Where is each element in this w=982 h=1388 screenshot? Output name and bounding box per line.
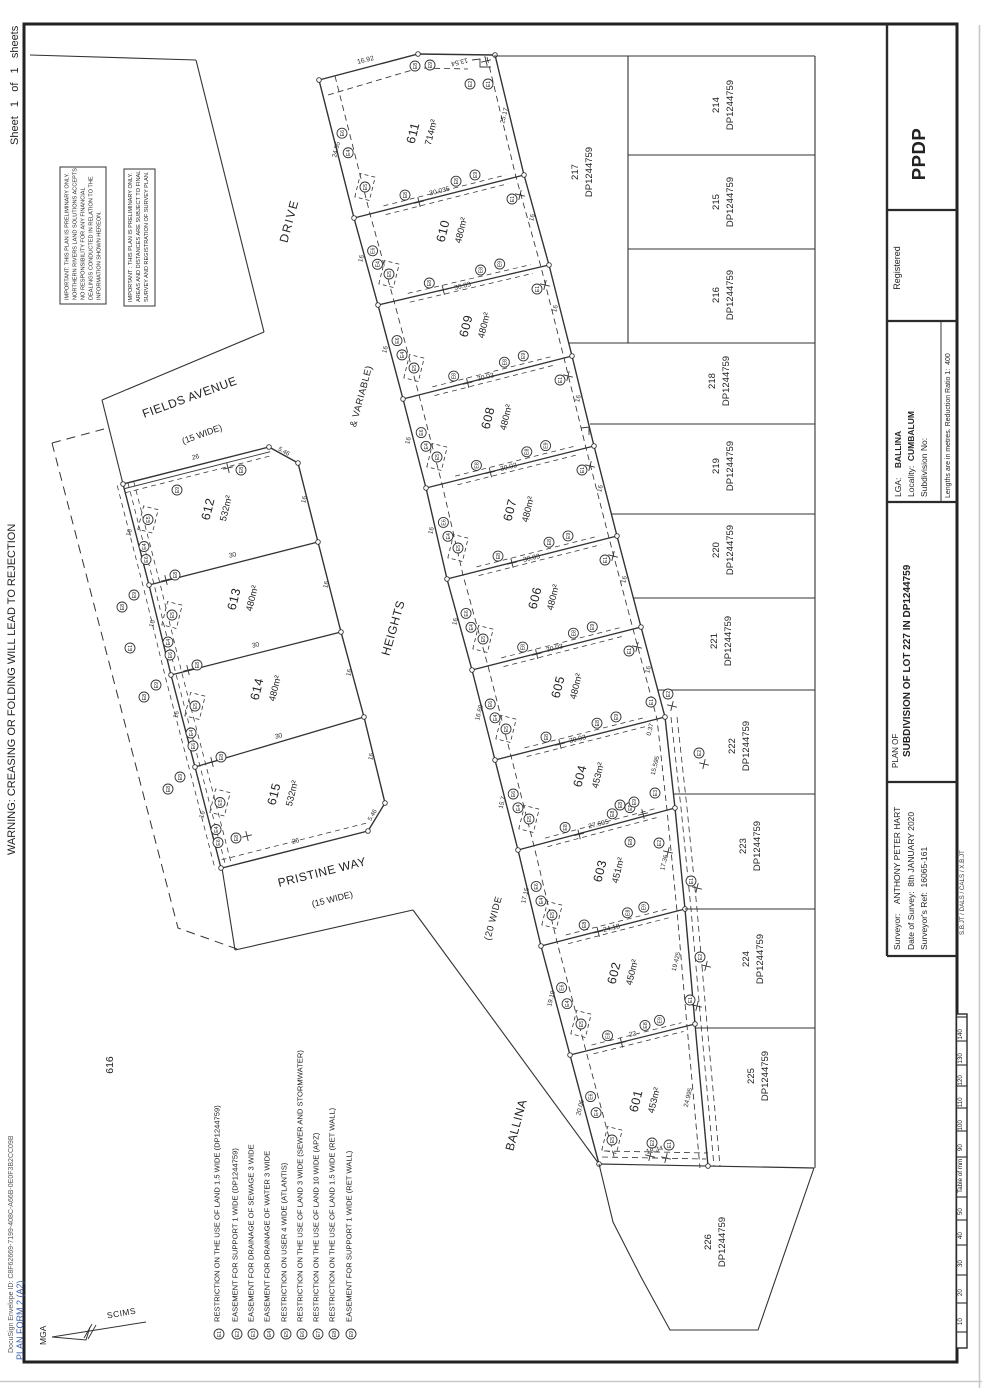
svg-text:E9: E9 — [428, 62, 434, 68]
svg-text:DP1244759: DP1244759 — [752, 821, 763, 871]
svg-text:219: 219 — [711, 458, 722, 474]
svg-text:E6: E6 — [168, 652, 174, 658]
svg-text:E9: E9 — [543, 442, 549, 448]
svg-text:DP1244759: DP1244759 — [725, 270, 736, 320]
svg-text:E9: E9 — [154, 682, 160, 688]
svg-text:E5: E5 — [610, 1137, 616, 1143]
svg-text:E3: E3 — [653, 790, 659, 796]
svg-text:E6: E6 — [559, 984, 565, 990]
svg-text:110: 110 — [957, 1097, 964, 1108]
svg-text:E4: E4 — [424, 443, 430, 449]
svg-text:Date of Survey: 8th JANUARY 2: Date of Survey: 8th JANUARY 2020 — [906, 812, 916, 950]
svg-text:E6: E6 — [216, 839, 222, 845]
svg-text:E8: E8 — [219, 754, 225, 760]
svg-text:E8: E8 — [521, 644, 527, 650]
svg-text:E8: E8 — [625, 910, 631, 916]
svg-text:40: 40 — [957, 1232, 964, 1240]
svg-text:NORTHERN RIVERS LAND SOLUTIONS: NORTHERN RIVERS LAND SOLUTIONS ACCEPTS — [73, 168, 79, 300]
svg-text:214: 214 — [711, 97, 722, 113]
svg-text:E2: E2 — [666, 691, 672, 697]
svg-text:E9: E9 — [132, 592, 138, 598]
svg-text:10: 10 — [957, 1318, 964, 1326]
svg-text:DP1244759: DP1244759 — [725, 177, 736, 227]
svg-text:E1: E1 — [580, 467, 586, 473]
svg-text:140: 140 — [957, 1029, 964, 1040]
svg-text:E8: E8 — [478, 267, 484, 273]
svg-text:Sheet 1 of 1 sheets: Sheet 1 of 1 sheets — [9, 25, 21, 145]
svg-text:E8: E8 — [452, 373, 458, 379]
svg-text:E8: E8 — [173, 572, 179, 578]
svg-text:E5: E5 — [435, 454, 441, 460]
svg-text:EASEMENT FOR DRAINAGE OF WATER: EASEMENT FOR DRAINAGE OF WATER 3 WIDE — [263, 1151, 272, 1322]
svg-text:E5: E5 — [481, 636, 487, 642]
svg-text:E1: E1 — [688, 997, 694, 1003]
svg-text:E6: E6 — [340, 130, 346, 136]
svg-text:E9: E9 — [642, 904, 648, 910]
svg-text:E4: E4 — [346, 149, 352, 155]
svg-text:E4: E4 — [375, 261, 381, 267]
svg-text:DEALINGS CONDUCTED IN RELATION: DEALINGS CONDUCTED IN RELATION TO THE — [89, 176, 95, 300]
svg-text:215: 215 — [711, 194, 722, 210]
svg-text:RESTRICTION ON THE USE OF LAND: RESTRICTION ON THE USE OF LAND 3 WIDE (S… — [296, 1050, 305, 1322]
svg-text:E9: E9 — [590, 624, 596, 630]
svg-text:AREAS AND DISTANCES ARE SUBJEC: AREAS AND DISTANCES ARE SUBJECT TO FINAL — [136, 171, 142, 302]
svg-text:DP1244759: DP1244759 — [741, 721, 752, 771]
svg-text:100: 100 — [957, 1120, 964, 1131]
svg-text:E6: E6 — [300, 1331, 306, 1337]
svg-text:DP1244759: DP1244759 — [755, 934, 766, 984]
svg-text:90: 90 — [957, 1144, 964, 1152]
svg-text:30: 30 — [957, 1260, 964, 1268]
svg-text:PLAN OF: PLAN OF — [891, 734, 900, 768]
svg-text:SUBDIVISION OF LOT 227 IN DP12: SUBDIVISION OF LOT 227 IN DP1244759 — [902, 564, 913, 757]
svg-text:E9: E9 — [657, 1017, 663, 1023]
svg-text:E5: E5 — [363, 184, 369, 190]
svg-text:E8: E8 — [605, 1032, 611, 1038]
svg-text:E5: E5 — [456, 545, 462, 551]
svg-text:222: 222 — [727, 738, 738, 754]
svg-text:E4: E4 — [189, 730, 195, 736]
svg-text:E1: E1 — [603, 557, 609, 563]
svg-text:E6: E6 — [370, 248, 376, 254]
svg-text:E5: E5 — [387, 271, 393, 277]
svg-text:50: 50 — [957, 1208, 964, 1216]
svg-text:E1: E1 — [535, 286, 541, 292]
svg-text:E9: E9 — [498, 261, 504, 267]
svg-text:PLAN FORM 2 (A2): PLAN FORM 2 (A2) — [15, 1280, 25, 1360]
svg-text:221: 221 — [709, 633, 720, 649]
svg-text:DP1244759: DP1244759 — [725, 525, 736, 575]
svg-text:E4: E4 — [516, 805, 522, 811]
svg-text:E2: E2 — [697, 750, 703, 756]
svg-text:E2: E2 — [468, 81, 474, 87]
svg-text:DP1244759: DP1244759 — [760, 1051, 771, 1101]
svg-text:E8: E8 — [563, 824, 569, 830]
svg-text:E8: E8 — [142, 694, 148, 700]
svg-text:E8: E8 — [166, 786, 172, 792]
svg-text:S.B.JT / DALS / CALS / X.B.JT: S.B.JT / DALS / CALS / X.B.JT — [959, 850, 966, 935]
svg-text:E8: E8 — [427, 280, 433, 286]
svg-text:Surveyor's Ref: 16065-161: Surveyor's Ref: 16065-161 — [919, 847, 929, 950]
svg-text:WARNING: CREASING OR FOLDING W: WARNING: CREASING OR FOLDING WILL LEAD T… — [6, 524, 18, 855]
svg-text:E4: E4 — [267, 1331, 273, 1337]
svg-text:E8: E8 — [643, 1022, 649, 1028]
svg-text:E5: E5 — [550, 912, 556, 918]
svg-text:EASEMENT FOR DRAINAGE OF SEWAG: EASEMENT FOR DRAINAGE OF SEWAGE 3 WIDE — [247, 1144, 256, 1322]
svg-text:IMPORTANT: THIS PLAN IS PRELIM: IMPORTANT: THIS PLAN IS PRELIMINARY ONLY… — [65, 173, 71, 300]
svg-text:E8: E8 — [413, 63, 419, 69]
svg-text:E2: E2 — [235, 1331, 241, 1337]
svg-text:E6: E6 — [191, 743, 197, 749]
svg-text:E5: E5 — [412, 365, 418, 371]
svg-text:E8: E8 — [547, 539, 553, 545]
svg-text:E9: E9 — [349, 1331, 355, 1337]
svg-text:E8: E8 — [571, 630, 577, 636]
svg-text:E5: E5 — [284, 1331, 290, 1337]
svg-text:E8: E8 — [628, 839, 634, 845]
svg-text:E8: E8 — [234, 835, 240, 841]
svg-text:E5: E5 — [527, 816, 533, 822]
svg-text:E4: E4 — [594, 1109, 600, 1115]
svg-text:EASEMENT FOR SUPPORT 1 WIDE (D: EASEMENT FOR SUPPORT 1 WIDE (DP1244759) — [231, 1148, 240, 1322]
svg-text:RESTRICTION ON THE USE OF LAND: RESTRICTION ON THE USE OF LAND 1.5 WIDE … — [213, 1105, 222, 1322]
svg-text:E5: E5 — [218, 799, 224, 805]
svg-text:E8: E8 — [403, 192, 409, 198]
svg-text:E6: E6 — [395, 337, 401, 343]
svg-text:DocuSign Envelope ID: C8F62669: DocuSign Envelope ID: C8F62669-7199-408C… — [8, 1135, 15, 1353]
svg-text:E9: E9 — [178, 774, 184, 780]
svg-text:E1: E1 — [510, 196, 516, 202]
svg-text:E1: E1 — [667, 1142, 673, 1148]
svg-text:RESTRICTION ON THE USE OF LAND: RESTRICTION ON THE USE OF LAND 10 WIDE (… — [312, 1132, 321, 1322]
svg-text:E6: E6 — [419, 429, 425, 435]
svg-text:E6: E6 — [441, 519, 447, 525]
svg-text:E6: E6 — [534, 883, 540, 889]
svg-text:216: 216 — [711, 287, 722, 303]
svg-text:E8: E8 — [120, 604, 126, 610]
svg-text:E1: E1 — [217, 1331, 223, 1337]
svg-text:E2: E2 — [657, 840, 663, 846]
svg-text:E8: E8 — [525, 449, 531, 455]
svg-text:120: 120 — [957, 1075, 964, 1086]
svg-text:LGA: BALLINA: LGA: BALLINA — [893, 431, 903, 497]
svg-text:E4: E4 — [214, 826, 220, 832]
svg-text:E8: E8 — [618, 802, 624, 808]
svg-text:20: 20 — [957, 1289, 964, 1297]
svg-text:224: 224 — [741, 951, 752, 967]
svg-text:DP1244759: DP1244759 — [721, 356, 732, 406]
svg-text:218: 218 — [707, 373, 718, 389]
svg-text:E8: E8 — [454, 178, 460, 184]
svg-text:E4: E4 — [142, 543, 148, 549]
svg-text:223: 223 — [738, 838, 749, 854]
svg-text:DP1244759: DP1244759 — [725, 80, 736, 130]
svg-text:E6: E6 — [588, 1093, 594, 1099]
svg-text:DP1244759: DP1244759 — [584, 147, 595, 197]
svg-text:E1: E1 — [558, 377, 564, 383]
svg-text:E5: E5 — [504, 726, 510, 732]
svg-text:E4: E4 — [469, 624, 475, 630]
svg-text:E8: E8 — [332, 1331, 338, 1337]
svg-text:E1: E1 — [486, 81, 492, 87]
svg-text:E8: E8 — [595, 720, 601, 726]
svg-text:E1: E1 — [649, 699, 655, 705]
svg-text:EASEMENT FOR SUPPORT 1 WIDE (R: EASEMENT FOR SUPPORT 1 WIDE (RET WALL) — [345, 1150, 354, 1322]
svg-text:220: 220 — [711, 542, 722, 558]
svg-text:E4: E4 — [446, 533, 452, 539]
svg-text:Lengths are in metres. Reducti: Lengths are in metres. Reduction Ratio 1… — [945, 353, 952, 498]
svg-text:E4: E4 — [539, 898, 545, 904]
svg-text:E8: E8 — [610, 811, 616, 817]
svg-text:E8: E8 — [239, 467, 245, 473]
svg-text:E8: E8 — [195, 662, 201, 668]
svg-text:E9: E9 — [566, 533, 572, 539]
svg-text:130: 130 — [957, 1053, 964, 1064]
svg-text:E5: E5 — [193, 703, 199, 709]
svg-text:Subdivision No:: Subdivision No: — [919, 438, 929, 497]
svg-text:DP1244759: DP1244759 — [725, 441, 736, 491]
svg-text:SURVEY AND REGISTRATION OF SUR: SURVEY AND REGISTRATION OF SURVEY PLAN. — [144, 171, 150, 302]
svg-text:E9: E9 — [521, 353, 527, 359]
svg-text:E8: E8 — [502, 359, 508, 365]
svg-text:E8: E8 — [496, 553, 502, 559]
svg-text:MGA: MGA — [38, 1325, 48, 1345]
svg-text:E8: E8 — [474, 462, 480, 468]
svg-text:DP1244759: DP1244759 — [717, 1217, 728, 1267]
svg-text:E5: E5 — [579, 1021, 585, 1027]
svg-text:E6: E6 — [488, 701, 494, 707]
svg-text:E8: E8 — [544, 734, 550, 740]
svg-text:E6: E6 — [464, 610, 470, 616]
svg-text:E3: E3 — [251, 1331, 257, 1337]
svg-text:616: 616 — [104, 1056, 116, 1074]
svg-text:E9: E9 — [632, 799, 638, 805]
svg-text:Surveyor: ANTHONY PETER HAR: Surveyor: ANTHONY PETER HART — [892, 807, 902, 950]
svg-text:E4: E4 — [400, 352, 406, 358]
svg-text:E6: E6 — [511, 791, 517, 797]
svg-text:E6: E6 — [144, 556, 150, 562]
svg-text:E9: E9 — [473, 172, 479, 178]
svg-text:Locality: CUMBALUM: Locality: CUMBALUM — [906, 411, 916, 497]
svg-text:217: 217 — [570, 164, 581, 180]
svg-text:226: 226 — [703, 1234, 714, 1250]
svg-text:Registered: Registered — [892, 246, 902, 290]
svg-text:E2: E2 — [650, 1140, 656, 1146]
svg-text:Table of mm: Table of mm — [957, 1159, 964, 1193]
svg-text:E8: E8 — [582, 922, 588, 928]
svg-text:E5: E5 — [170, 612, 176, 618]
svg-text:E4: E4 — [493, 715, 499, 721]
svg-text:E5: E5 — [146, 516, 152, 522]
svg-text:NO RESPONSIBILITY FOR ANY FINA: NO RESPONSIBILITY FOR ANY FINANCIAL — [81, 187, 87, 300]
svg-text:IMPORTANT : THIS PLAN IS PRELI: IMPORTANT : THIS PLAN IS PRELIMINARY ONL… — [128, 172, 134, 302]
svg-text:E1: E1 — [128, 645, 134, 651]
svg-text:E7: E7 — [316, 1331, 322, 1337]
svg-text:E4: E4 — [166, 639, 172, 645]
svg-text:225: 225 — [746, 1068, 757, 1084]
svg-text:E1: E1 — [627, 648, 633, 654]
svg-text:PPDP: PPDP — [908, 128, 929, 180]
svg-text:RESTRICTION ON THE USE OF LAND: RESTRICTION ON THE USE OF LAND 1.5 WIDE … — [328, 1107, 337, 1322]
svg-text:E1: E1 — [689, 878, 695, 884]
svg-text:E4: E4 — [565, 1000, 571, 1006]
svg-text:DP1244759: DP1244759 — [723, 616, 734, 666]
svg-text:INFORMATION SHOWN HEREON.: INFORMATION SHOWN HEREON. — [97, 211, 103, 300]
svg-text:E2: E2 — [698, 954, 704, 960]
svg-text:E9: E9 — [614, 714, 620, 720]
svg-text:RESTRICTION ON USER 4 WIDE (AT: RESTRICTION ON USER 4 WIDE (ATLANTIS) — [280, 1162, 289, 1322]
svg-text:E9: E9 — [175, 487, 181, 493]
